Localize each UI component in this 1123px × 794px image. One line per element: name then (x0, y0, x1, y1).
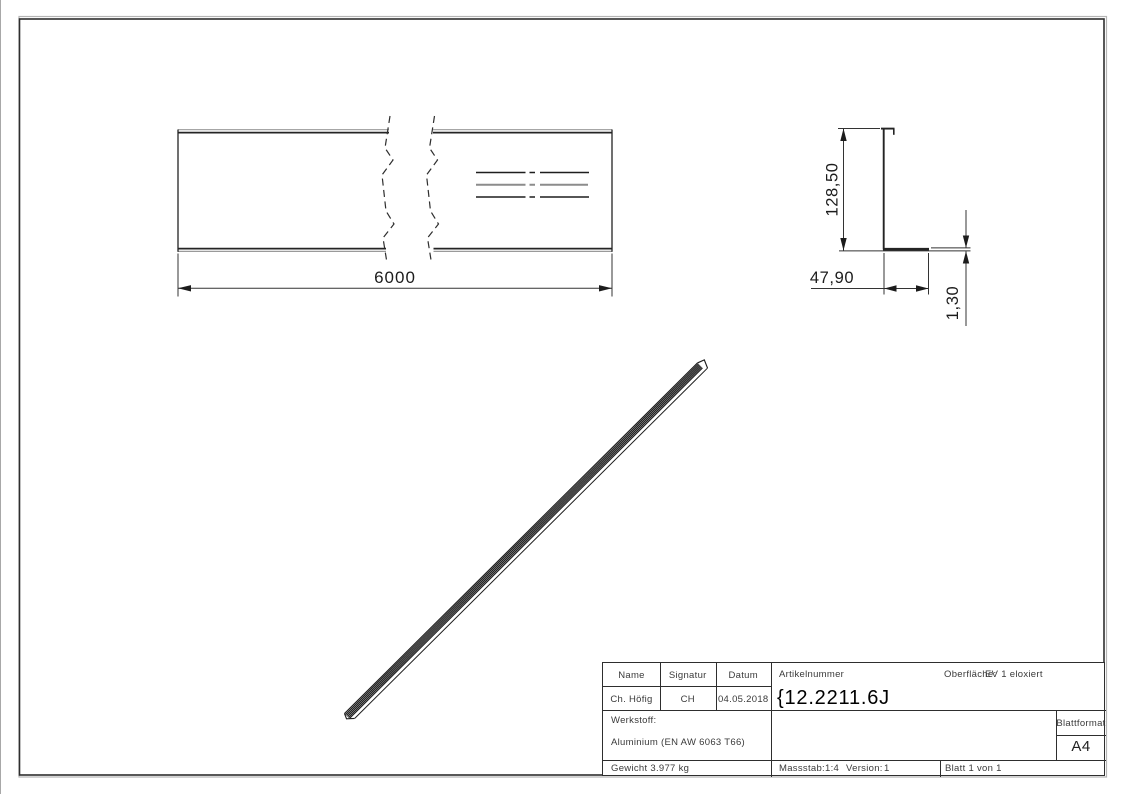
grid-line (940, 760, 941, 777)
name-header: Name (603, 670, 660, 681)
werkstoff-value: Aluminium (EN AW 6063 T66) (611, 737, 745, 748)
grid-line (603, 760, 1106, 761)
length-dim-text: 6000 (374, 268, 416, 287)
break-line-left (382, 116, 394, 263)
datum-value: 04.05.2018 (716, 694, 772, 705)
datum-header: Datum (716, 670, 772, 681)
version-value: 1 (884, 763, 890, 774)
length-dimension: 6000 (178, 254, 612, 297)
massstab-label: Massstab: (779, 763, 825, 774)
arrowhead-up (963, 251, 969, 263)
section-view (839, 128, 971, 251)
artikelnummer-label: Artikelnummer (779, 669, 844, 680)
grid-line (603, 686, 771, 687)
thickness-dim-text: 1,30 (944, 286, 962, 321)
arrowhead-right (916, 285, 929, 291)
title-block: Name Signatur Datum Ch. Höfig CH 04.05.2… (602, 662, 1105, 776)
break-line-right (427, 116, 439, 263)
arrowhead-down (963, 236, 969, 248)
artikelnummer-value: {12.2211.6J (777, 687, 890, 710)
blatt-value: Blatt 1 von 1 (945, 763, 1002, 774)
grid-line (603, 710, 1106, 711)
iso-band-line (345, 363, 698, 714)
arrowhead-bottom (840, 238, 846, 251)
surface-marking-lines (476, 173, 589, 198)
height-dimension: 128,50 (824, 129, 881, 251)
height-dim-text: 128,50 (824, 162, 842, 216)
arrowhead-top (840, 129, 846, 142)
thickness-dimension: 1,30 (944, 210, 969, 326)
grid-line (1056, 735, 1106, 736)
width-dimension: 47,90 (810, 253, 929, 295)
gewicht-value: Gewicht 3.977 kg (611, 763, 689, 774)
arrowhead-left (178, 285, 191, 291)
name-value: Ch. Höfig (603, 694, 660, 705)
front-view (178, 116, 612, 263)
oberflaeche-value: EV 1 eloxiert (985, 669, 1043, 680)
blattformat-value: A4 (1056, 738, 1106, 755)
werkstoff-label: Werkstoff: (611, 715, 656, 726)
massstab-value: 1:4 (825, 763, 839, 774)
drawing-sheet: { "dimensions": { "length": "6000", "hei… (0, 0, 1123, 794)
version-label: Version: (846, 763, 883, 774)
arrowhead-left (884, 285, 897, 291)
blattformat-label: Blattformat (1056, 718, 1106, 729)
arrowhead-right (599, 285, 612, 291)
signatur-header: Signatur (660, 670, 716, 681)
signatur-value: CH (660, 694, 716, 705)
width-dim-text: 47,90 (810, 269, 854, 287)
